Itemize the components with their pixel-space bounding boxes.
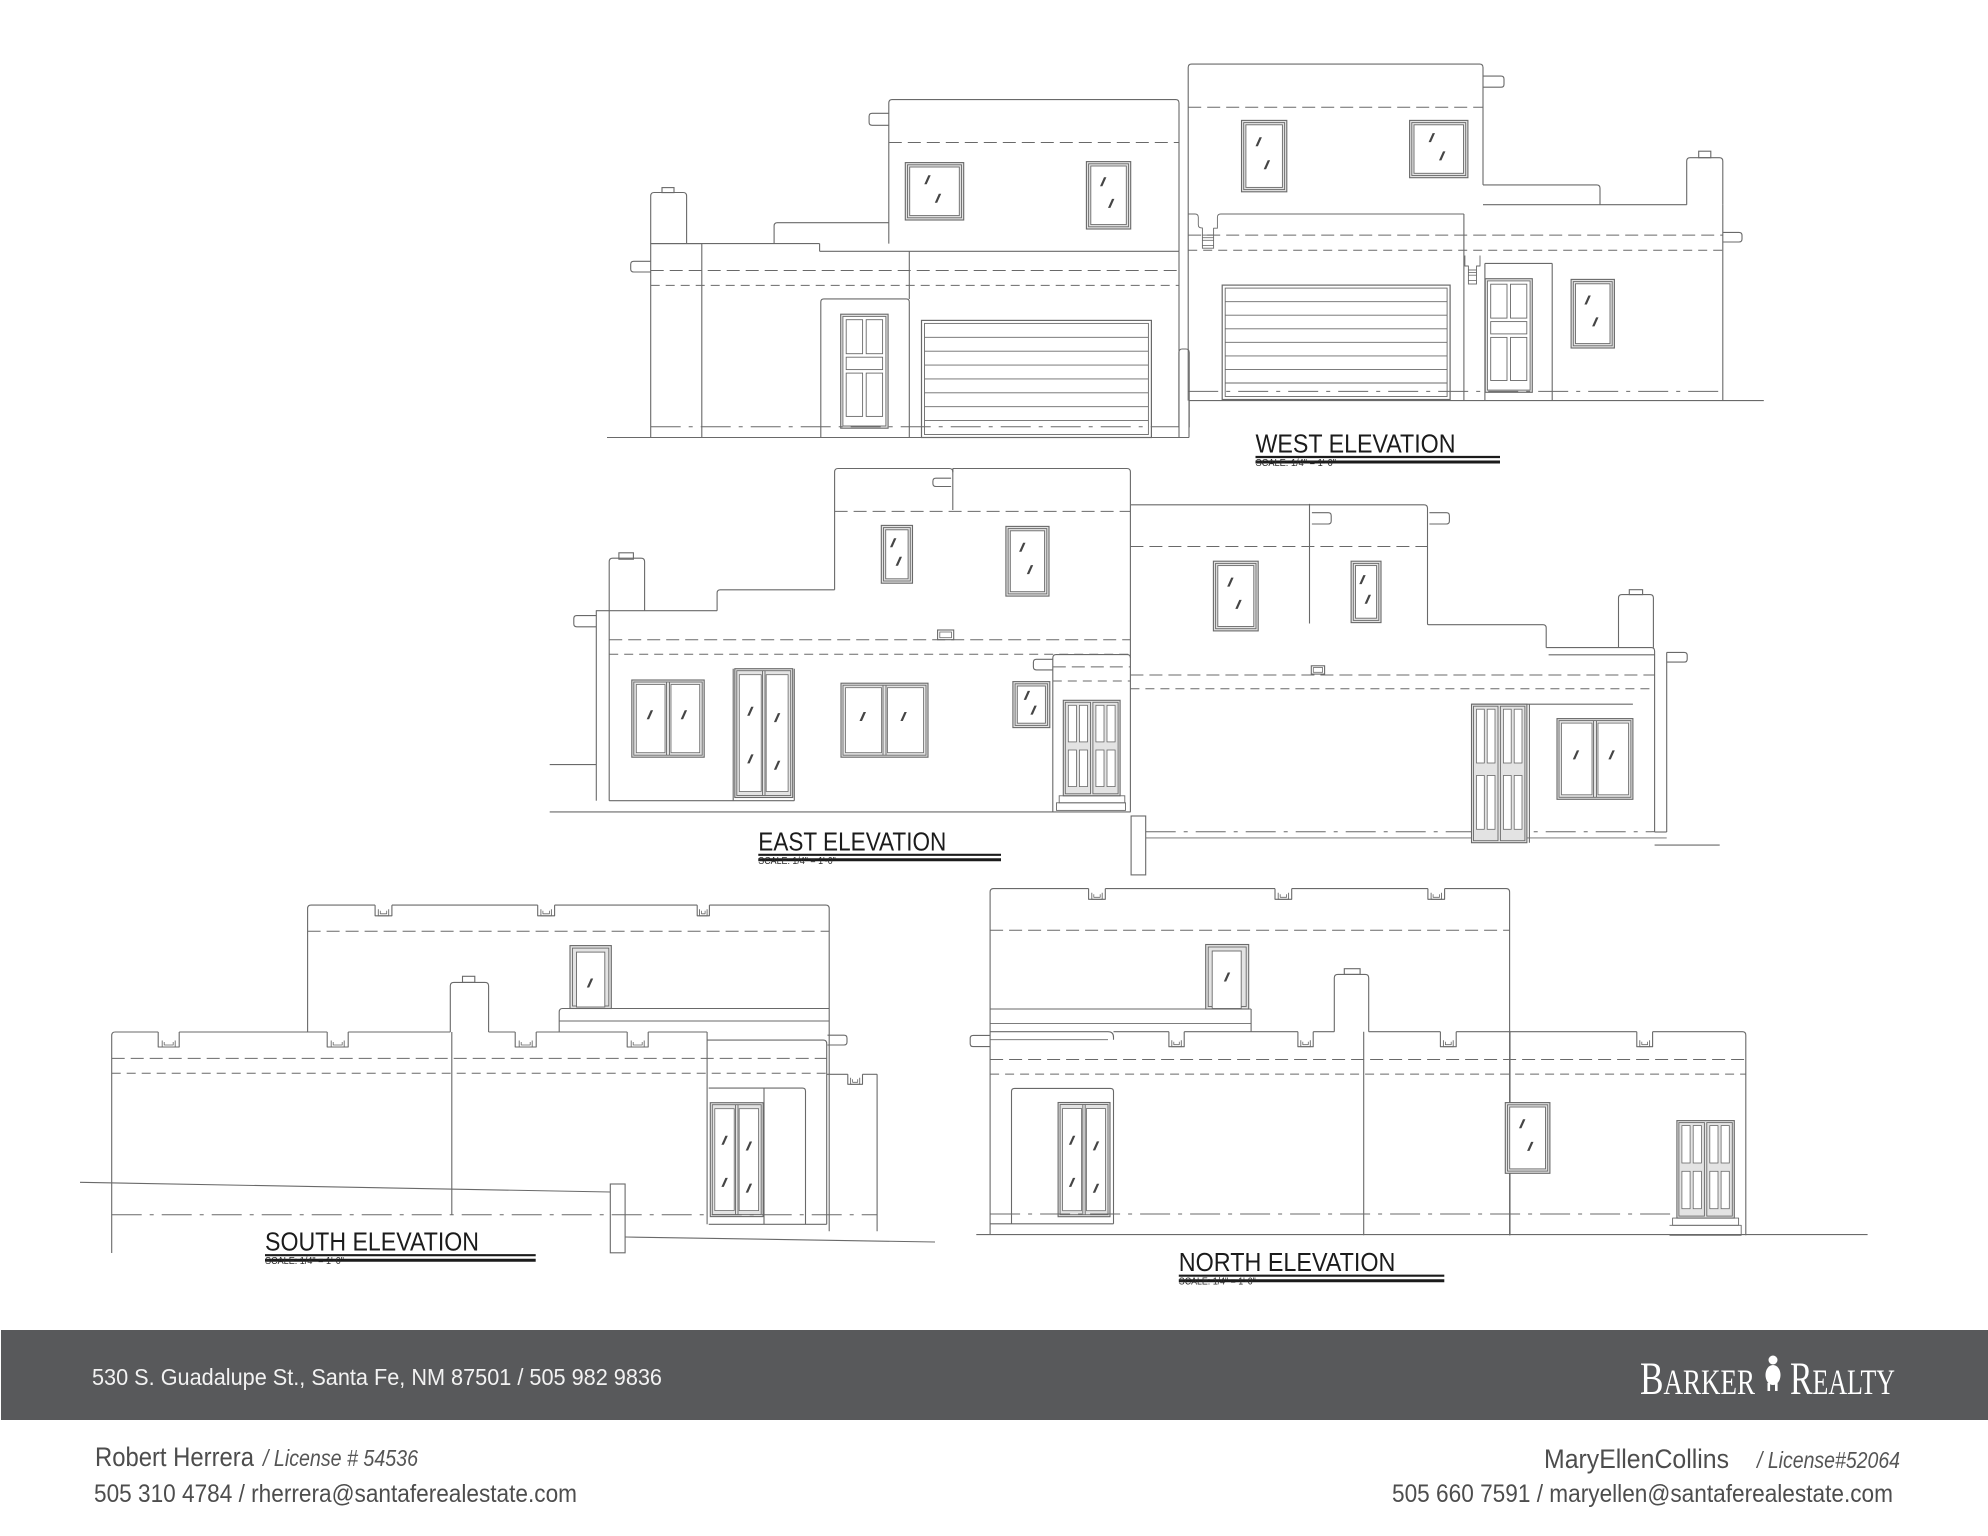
- svg-text:505 660 7591 / maryellen@santa: 505 660 7591 / maryellen@santaferealesta…: [1392, 1480, 1893, 1508]
- svg-text:WEST ELEVATION: WEST ELEVATION: [1256, 429, 1456, 459]
- svg-text:530 S. Guadalupe St., Santa Fe: 530 S. Guadalupe St., Santa Fe, NM 87501…: [92, 1364, 662, 1390]
- svg-text:505 310 4784 / rherrera@santaf: 505 310 4784 / rherrera@santaferealestat…: [94, 1480, 577, 1508]
- svg-text:EAST ELEVATION: EAST ELEVATION: [758, 826, 946, 856]
- svg-text:Robert Herrera: Robert Herrera: [95, 1442, 255, 1472]
- svg-text:NORTH ELEVATION: NORTH ELEVATION: [1179, 1247, 1396, 1277]
- svg-text:SCALE: 1/4" = 1'-0": SCALE: 1/4" = 1'-0": [1179, 1277, 1256, 1288]
- svg-text:/ License#52064: / License#52064: [1755, 1447, 1900, 1473]
- svg-text:/ License # 54536: / License # 54536: [261, 1445, 418, 1471]
- svg-text:SCALE: 1/4" = 1'-0": SCALE: 1/4" = 1'-0": [1256, 458, 1337, 469]
- svg-text:SCALE: 1/4" = 1'-0": SCALE: 1/4" = 1'-0": [265, 1256, 344, 1267]
- svg-text:MaryEllenCollins: MaryEllenCollins: [1544, 1444, 1729, 1474]
- svg-text:SOUTH ELEVATION: SOUTH ELEVATION: [265, 1227, 479, 1257]
- svg-text:SCALE: 1/4" = 1'-0": SCALE: 1/4" = 1'-0": [758, 856, 836, 867]
